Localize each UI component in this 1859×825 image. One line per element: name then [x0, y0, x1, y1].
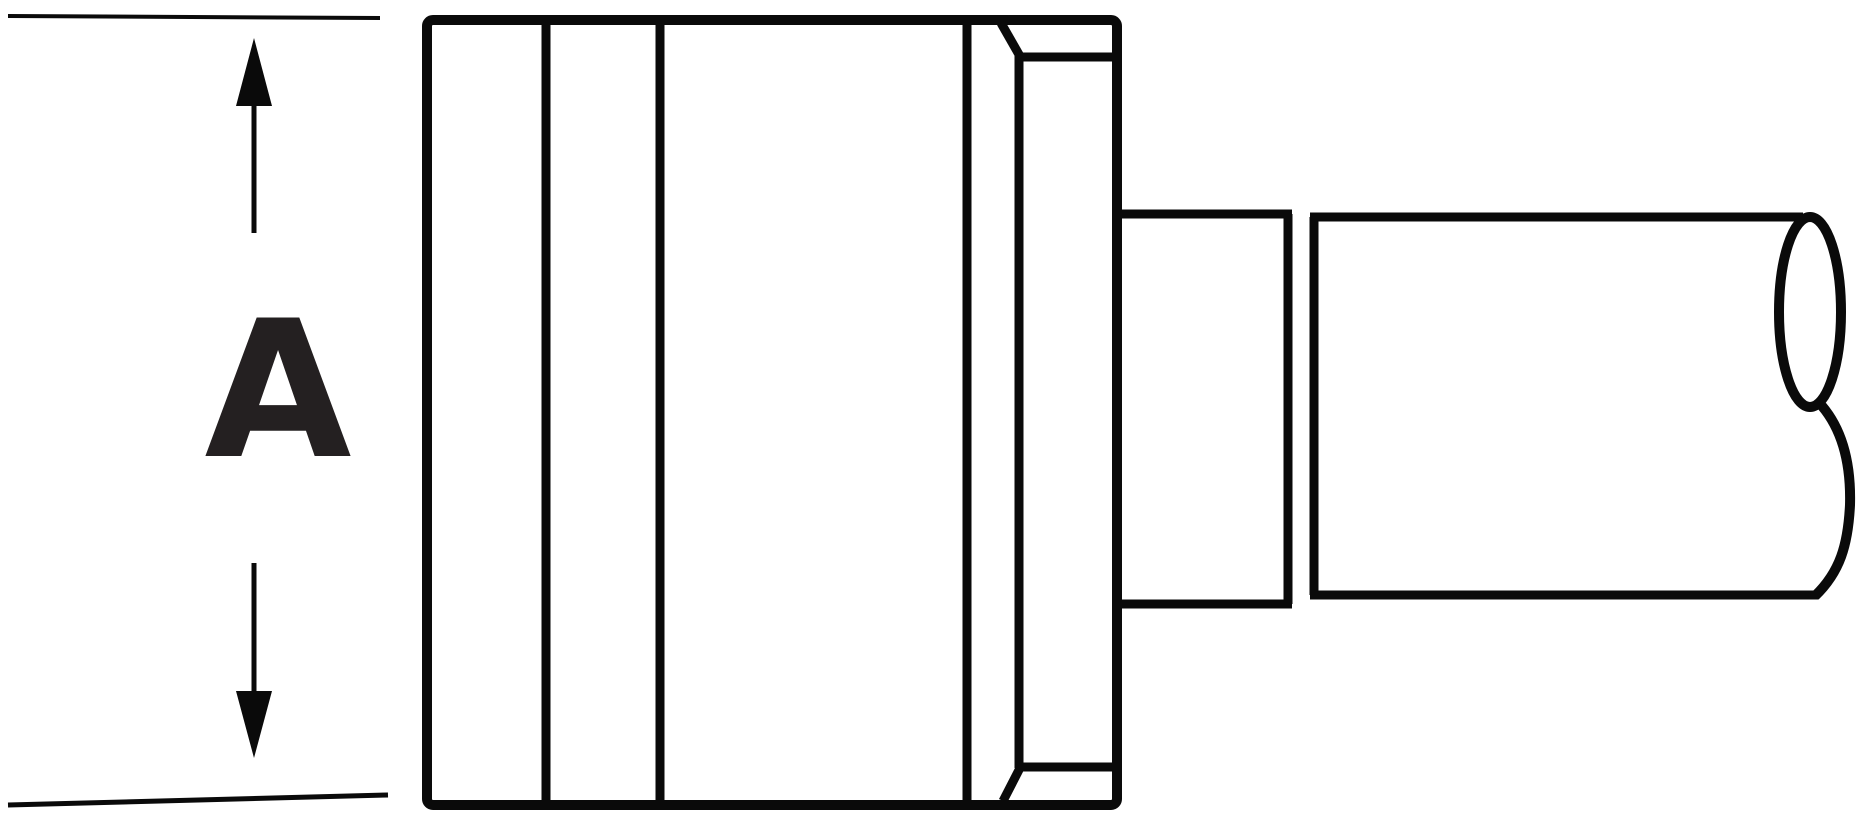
technical-drawing-canvas: A	[0, 0, 1859, 825]
arrowhead-down-icon	[236, 691, 272, 758]
tip-dimension-drawing: A	[0, 0, 1859, 825]
shaft-end-break-curve	[1815, 406, 1850, 596]
shaft-end-face-ellipse	[1779, 217, 1841, 407]
blade-body	[427, 20, 1117, 805]
tip-outline	[427, 20, 1850, 805]
extension-line-bottom	[8, 795, 388, 805]
arrowhead-up-icon	[236, 38, 272, 106]
extension-line-top	[8, 16, 380, 18]
dimension-label: A	[204, 280, 351, 501]
